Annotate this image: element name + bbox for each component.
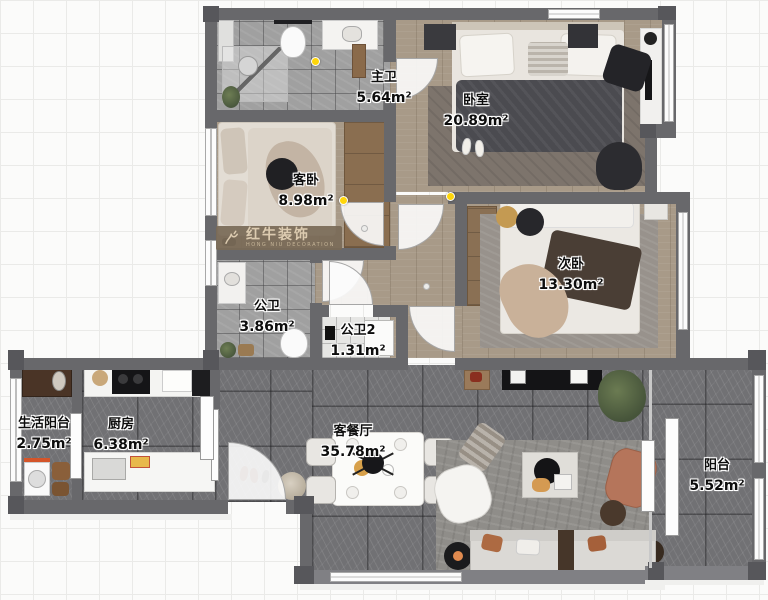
room-area: 2.75m²	[16, 434, 71, 456]
sill	[300, 584, 665, 590]
room-label-second-bedroom: 次卧 13.30m²	[538, 255, 603, 297]
sliding-door-panel[interactable]	[665, 418, 679, 536]
tall-cabinet[interactable]	[200, 396, 214, 460]
light-marker-yellow	[446, 192, 455, 201]
sink-master-bath	[342, 26, 362, 42]
room-label-laundry-balcony: 生活阳台 2.75m²	[16, 414, 71, 456]
sill	[10, 514, 232, 520]
wall-pillar	[8, 496, 24, 514]
wall-pillar	[203, 350, 219, 370]
wall-pillar	[640, 124, 656, 138]
room-label-living-dining: 客餐厅 35.78m²	[320, 422, 385, 464]
wall-segment	[215, 110, 390, 122]
room-name: 生活阳台	[16, 414, 71, 434]
room-name: 厨房	[93, 415, 148, 435]
plate	[394, 438, 407, 451]
plant-master-bath[interactable]	[222, 86, 240, 108]
wall-segment	[373, 305, 408, 317]
dark-cushion	[516, 208, 544, 236]
slipper	[474, 140, 484, 158]
wall-segment	[455, 204, 467, 306]
wall-pillar	[294, 496, 314, 514]
basket	[238, 344, 254, 356]
striped-pillow	[528, 42, 568, 76]
sink-public-bath	[224, 272, 240, 286]
watermark-brand: 红牛装饰	[246, 228, 335, 243]
room-label-kitchen: 厨房 6.38m²	[93, 415, 148, 457]
pillow	[220, 127, 248, 175]
kitchen-bowl	[92, 370, 108, 386]
room-area: 35.78m²	[320, 442, 385, 464]
desk-lamp	[644, 32, 657, 45]
nightstand-right[interactable]	[568, 24, 598, 48]
room-name: 卧室	[443, 91, 508, 111]
laundry-basket	[52, 482, 69, 496]
shower-drain	[238, 56, 258, 76]
burner	[133, 374, 143, 384]
wall-pillar	[748, 562, 766, 580]
nightstand-left[interactable]	[424, 24, 456, 50]
room-area: 20.89m²	[443, 111, 508, 133]
wall-segment	[645, 136, 657, 194]
wall-pillar	[8, 350, 24, 370]
pillow	[459, 33, 515, 78]
wall-segment	[396, 317, 408, 358]
room-area: 8.98m²	[278, 191, 333, 213]
window[interactable]	[330, 572, 462, 582]
room-label-guest-bedroom: 客卧 8.98m²	[278, 171, 333, 213]
wall-segment	[384, 118, 396, 202]
bull-logo-icon	[223, 229, 241, 247]
sliding-door-panel[interactable]	[70, 413, 82, 479]
room-label-public-bath: 公卫 3.86m²	[239, 297, 294, 339]
wall-pillar	[294, 566, 314, 584]
wall-segment	[455, 358, 755, 370]
window[interactable]	[664, 24, 674, 122]
nightstand-second[interactable]	[644, 202, 668, 220]
wall-segment	[310, 255, 322, 263]
wall-segment	[448, 192, 690, 204]
room-label-master-bath: 主卫 5.64m²	[356, 68, 411, 110]
wall-segment	[10, 500, 228, 514]
pillow	[220, 179, 248, 227]
wall-segment	[384, 18, 396, 62]
decor-frame	[570, 368, 588, 384]
decor-figurine	[470, 372, 482, 382]
room-name: 阳台	[689, 456, 744, 476]
wall-pillar	[203, 6, 219, 22]
sill	[645, 580, 764, 585]
window[interactable]	[678, 212, 688, 330]
room-label-balcony: 阳台 5.52m²	[689, 456, 744, 498]
room-area: 6.38m²	[93, 435, 148, 457]
room-label-public-bath-2: 公卫2 1.31m²	[330, 321, 385, 363]
wall-segment	[205, 8, 676, 20]
laundry-basket	[52, 462, 70, 480]
fridge[interactable]	[192, 366, 212, 396]
room-area: 3.86m²	[239, 317, 294, 339]
side-table-dark[interactable]	[600, 500, 626, 526]
sliding-door-panel[interactable]	[641, 440, 655, 512]
sofa-pillow-white	[516, 538, 541, 555]
light-marker-white	[361, 225, 368, 232]
room-name: 次卧	[538, 255, 603, 275]
window[interactable]	[205, 128, 217, 216]
room-name: 主卫	[356, 68, 411, 88]
light-marker-yellow	[311, 57, 320, 66]
toilet-master-bath[interactable]	[280, 26, 306, 58]
room-name: 公卫	[239, 297, 294, 317]
plant-living[interactable]	[598, 370, 646, 422]
window[interactable]	[548, 9, 600, 19]
book	[554, 474, 572, 490]
plant-public-bath	[220, 342, 236, 358]
plate	[346, 486, 359, 499]
watermark-tagline: HONG NIU DECORATION	[246, 243, 335, 248]
room-name: 客卧	[278, 171, 333, 191]
wall-segment	[10, 358, 215, 370]
room-name: 客餐厅	[320, 422, 385, 442]
record-label	[453, 551, 463, 561]
laundry-sink	[52, 371, 66, 391]
room-area: 13.30m²	[538, 275, 603, 297]
office-chair[interactable]	[596, 142, 642, 190]
window[interactable]	[754, 478, 764, 560]
wall-segment	[72, 365, 82, 415]
washer-drum	[28, 470, 46, 488]
watermark-plaque: 红牛装饰 HONG NIU DECORATION	[216, 226, 342, 250]
room-area: 5.64m²	[356, 88, 411, 110]
gold-cushion	[496, 206, 518, 228]
wall-pillar	[748, 350, 766, 370]
sofa-pillow-orange	[587, 535, 607, 552]
kitchen-sink	[92, 458, 126, 480]
room-area: 5.52m²	[689, 476, 744, 498]
light-marker-yellow	[339, 196, 348, 205]
counter-appliance	[162, 370, 192, 392]
cutting-board	[130, 456, 150, 468]
wall-segment	[315, 305, 329, 317]
snack-plate	[532, 478, 550, 492]
room-name: 公卫2	[330, 321, 385, 341]
light-marker-white	[423, 283, 430, 290]
floor-plan-canvas: 主卫 5.64m² 卧室 20.89m² 客卧 8.98m² 次卧 13.30m…	[0, 0, 768, 600]
burner	[118, 374, 128, 384]
window[interactable]	[754, 375, 764, 463]
room-area: 1.31m²	[330, 341, 385, 363]
room-label-master-bedroom: 卧室 20.89m²	[443, 91, 508, 133]
wall-pillar	[658, 6, 676, 20]
wall-segment	[72, 478, 82, 502]
decor-frame	[510, 370, 526, 384]
plate	[394, 486, 407, 499]
